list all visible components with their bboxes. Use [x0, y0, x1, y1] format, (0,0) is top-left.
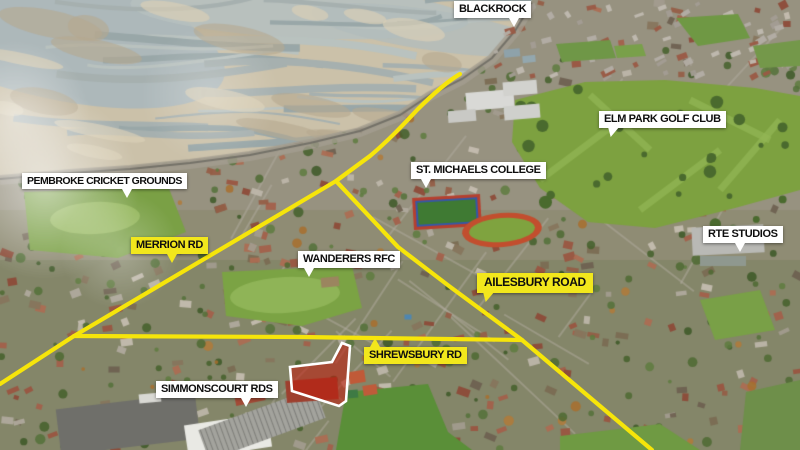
label-blackrock: BLACKROCK	[454, 1, 531, 18]
label-rte-text: RTE STUDIOS	[708, 228, 778, 240]
label-pembroke-pointer	[122, 189, 132, 198]
label-ailesbury-road: AILESBURY ROAD	[477, 273, 593, 293]
label-st-michaels-text: ST. MICHAELS COLLEGE	[416, 164, 541, 176]
label-pembroke-text: PEMBROKE CRICKET GROUNDS	[27, 175, 182, 187]
label-pembroke-cricket-grounds: PEMBROKE CRICKET GROUNDS	[22, 173, 187, 189]
label-merrion-rd: MERRION RD	[131, 237, 208, 254]
label-elm-park-text: ELM PARK GOLF CLUB	[604, 113, 721, 125]
label-rte-pointer	[735, 243, 745, 252]
label-wanderers-text: WANDERERS RFC	[303, 253, 395, 265]
label-merrion-text: MERRION RD	[136, 239, 203, 251]
label-wanderers-pointer	[304, 268, 314, 277]
label-blackrock-text: BLACKROCK	[459, 3, 526, 15]
aerial-photo	[0, 0, 800, 450]
label-merrion-pointer	[167, 254, 177, 263]
label-simmonscourt-rds: SIMMONSCOURT RDS	[156, 381, 278, 398]
label-rte-studios: RTE STUDIOS	[703, 226, 783, 243]
label-st-michaels-college: ST. MICHAELS COLLEGE	[411, 162, 546, 179]
label-shrewsbury-rd: SHREWSBURY RD	[364, 347, 467, 364]
label-blackrock-pointer	[509, 18, 519, 27]
label-simmonscourt-pointer	[241, 398, 251, 407]
label-simmonscourt-text: SIMMONSCOURT RDS	[161, 383, 273, 395]
label-ailesbury-text: AILESBURY ROAD	[484, 275, 586, 289]
label-st-michaels-pointer	[421, 179, 431, 188]
label-elm-park-golf-club: ELM PARK GOLF CLUB	[599, 111, 726, 128]
label-shrewsbury-pointer	[370, 338, 380, 347]
label-shrewsbury-text: SHREWSBURY RD	[369, 349, 462, 361]
label-wanderers-rfc: WANDERERS RFC	[298, 251, 400, 268]
aerial-map: BLACKROCK ELM PARK GOLF CLUB PEMBROKE CR…	[0, 0, 800, 450]
